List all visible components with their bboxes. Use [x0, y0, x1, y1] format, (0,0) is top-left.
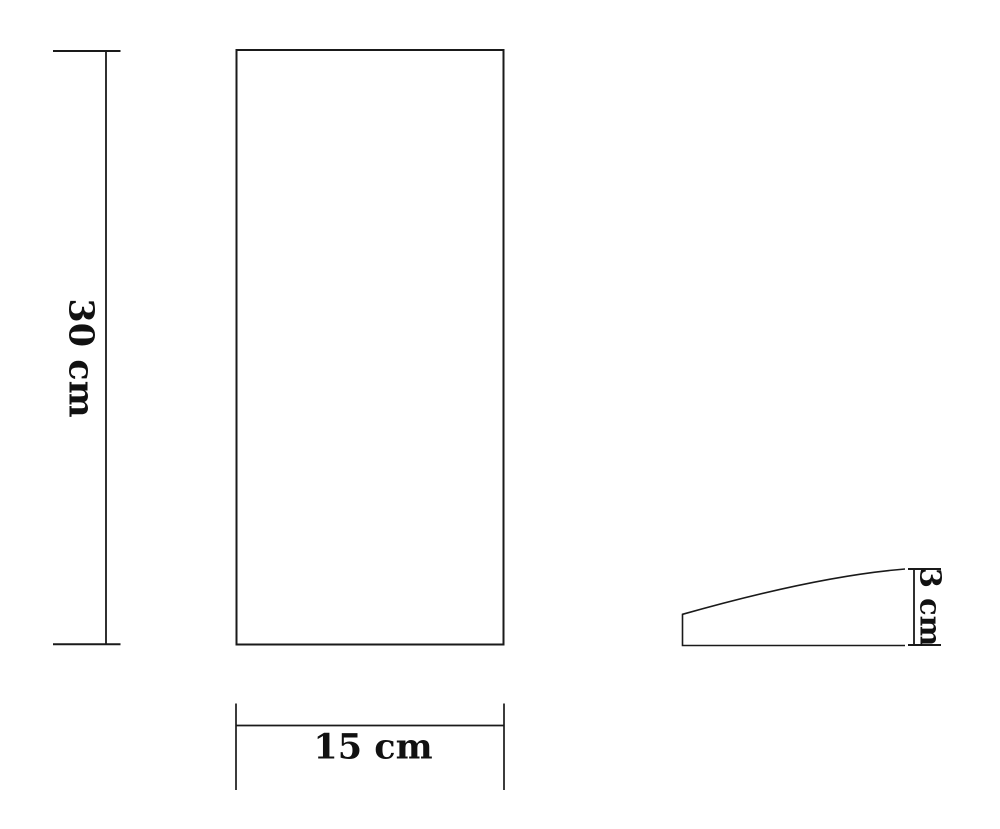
technical-drawing-canvas: 30 cm 15 cm 3 cm — [0, 0, 1000, 829]
drawing-svg — [0, 0, 1000, 829]
width-dimension-label: 15 cm — [313, 730, 432, 765]
height-dimension-label: 30 cm — [64, 298, 99, 417]
side-view-profile — [683, 569, 906, 646]
front-view-outline — [237, 50, 504, 645]
thickness-dimension-label: 3 cm — [916, 568, 945, 647]
